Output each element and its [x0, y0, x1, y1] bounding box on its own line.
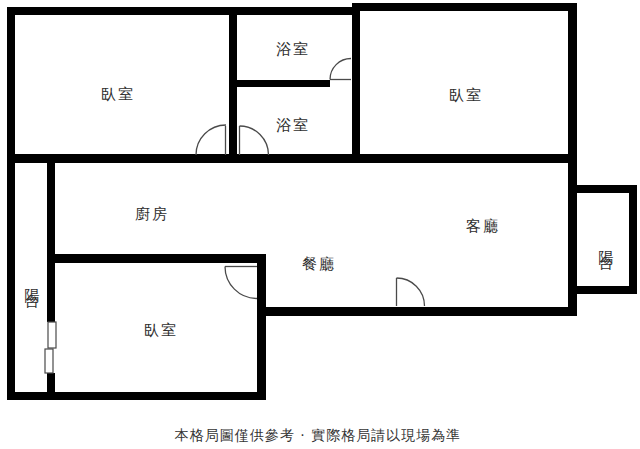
- door-arc-bathroom-top: [330, 59, 351, 80]
- room-label-bedroom-bottom: 臥室: [144, 322, 178, 339]
- wall-balcony-left-inner-lower: [47, 373, 55, 392]
- room-label-dining-room: 餐廳: [302, 256, 336, 273]
- wall-main-bottom: [257, 307, 577, 316]
- wall-balcony-right-outer: [629, 185, 637, 294]
- door-arc-living-room-entry: [397, 278, 425, 306]
- window-balcony-left: [45, 322, 56, 373]
- room-label-bedroom-top-left: 臥室: [101, 86, 135, 103]
- door-arc-bedroom-bottom: [225, 267, 257, 299]
- wall-bathrooms-bedroom2: [352, 10, 360, 155]
- room-label-kitchen: 廚房: [135, 206, 169, 223]
- wall-top-right: [352, 3, 577, 11]
- wall-balcony-right-top: [577, 185, 637, 193]
- wall-left-outer: [7, 7, 15, 400]
- disclaimer-caption: 本格局圖僅供參考 · 實際格局請以現場為準: [175, 427, 461, 445]
- room-label-balcony-right: 陽台: [596, 239, 613, 247]
- wall-kitchen-bedroom3: [47, 254, 266, 263]
- room-label-living-room: 客廳: [466, 218, 500, 235]
- wall-top-left: [7, 7, 360, 15]
- wall-middle-horizontal: [7, 154, 577, 163]
- floor-plan: 臥室 浴室 浴室 臥室 廚房 客廳 餐廳 臥室 陽台 陽台 本格局圖僅供參考 ·…: [0, 0, 640, 449]
- door-window-symbols: [0, 0, 640, 449]
- room-label-bathroom-top: 浴室: [276, 41, 310, 58]
- wall-bottom-left: [7, 392, 266, 400]
- wall-between-bathrooms: [237, 80, 330, 87]
- room-label-balcony-left: 陽台: [22, 277, 39, 285]
- wall-bedroom1-bathrooms: [229, 14, 237, 155]
- wall-bedroom-bottom-right: [257, 254, 266, 400]
- wall-balcony-left-inner-upper: [47, 163, 55, 322]
- room-label-bedroom-top-right: 臥室: [449, 87, 483, 104]
- door-arc-bathroom-middle: [240, 126, 269, 155]
- room-label-bathroom-middle: 浴室: [276, 117, 310, 134]
- door-arc-bedroom-top-left: [196, 125, 226, 155]
- wall-balcony-right-bottom: [577, 286, 637, 294]
